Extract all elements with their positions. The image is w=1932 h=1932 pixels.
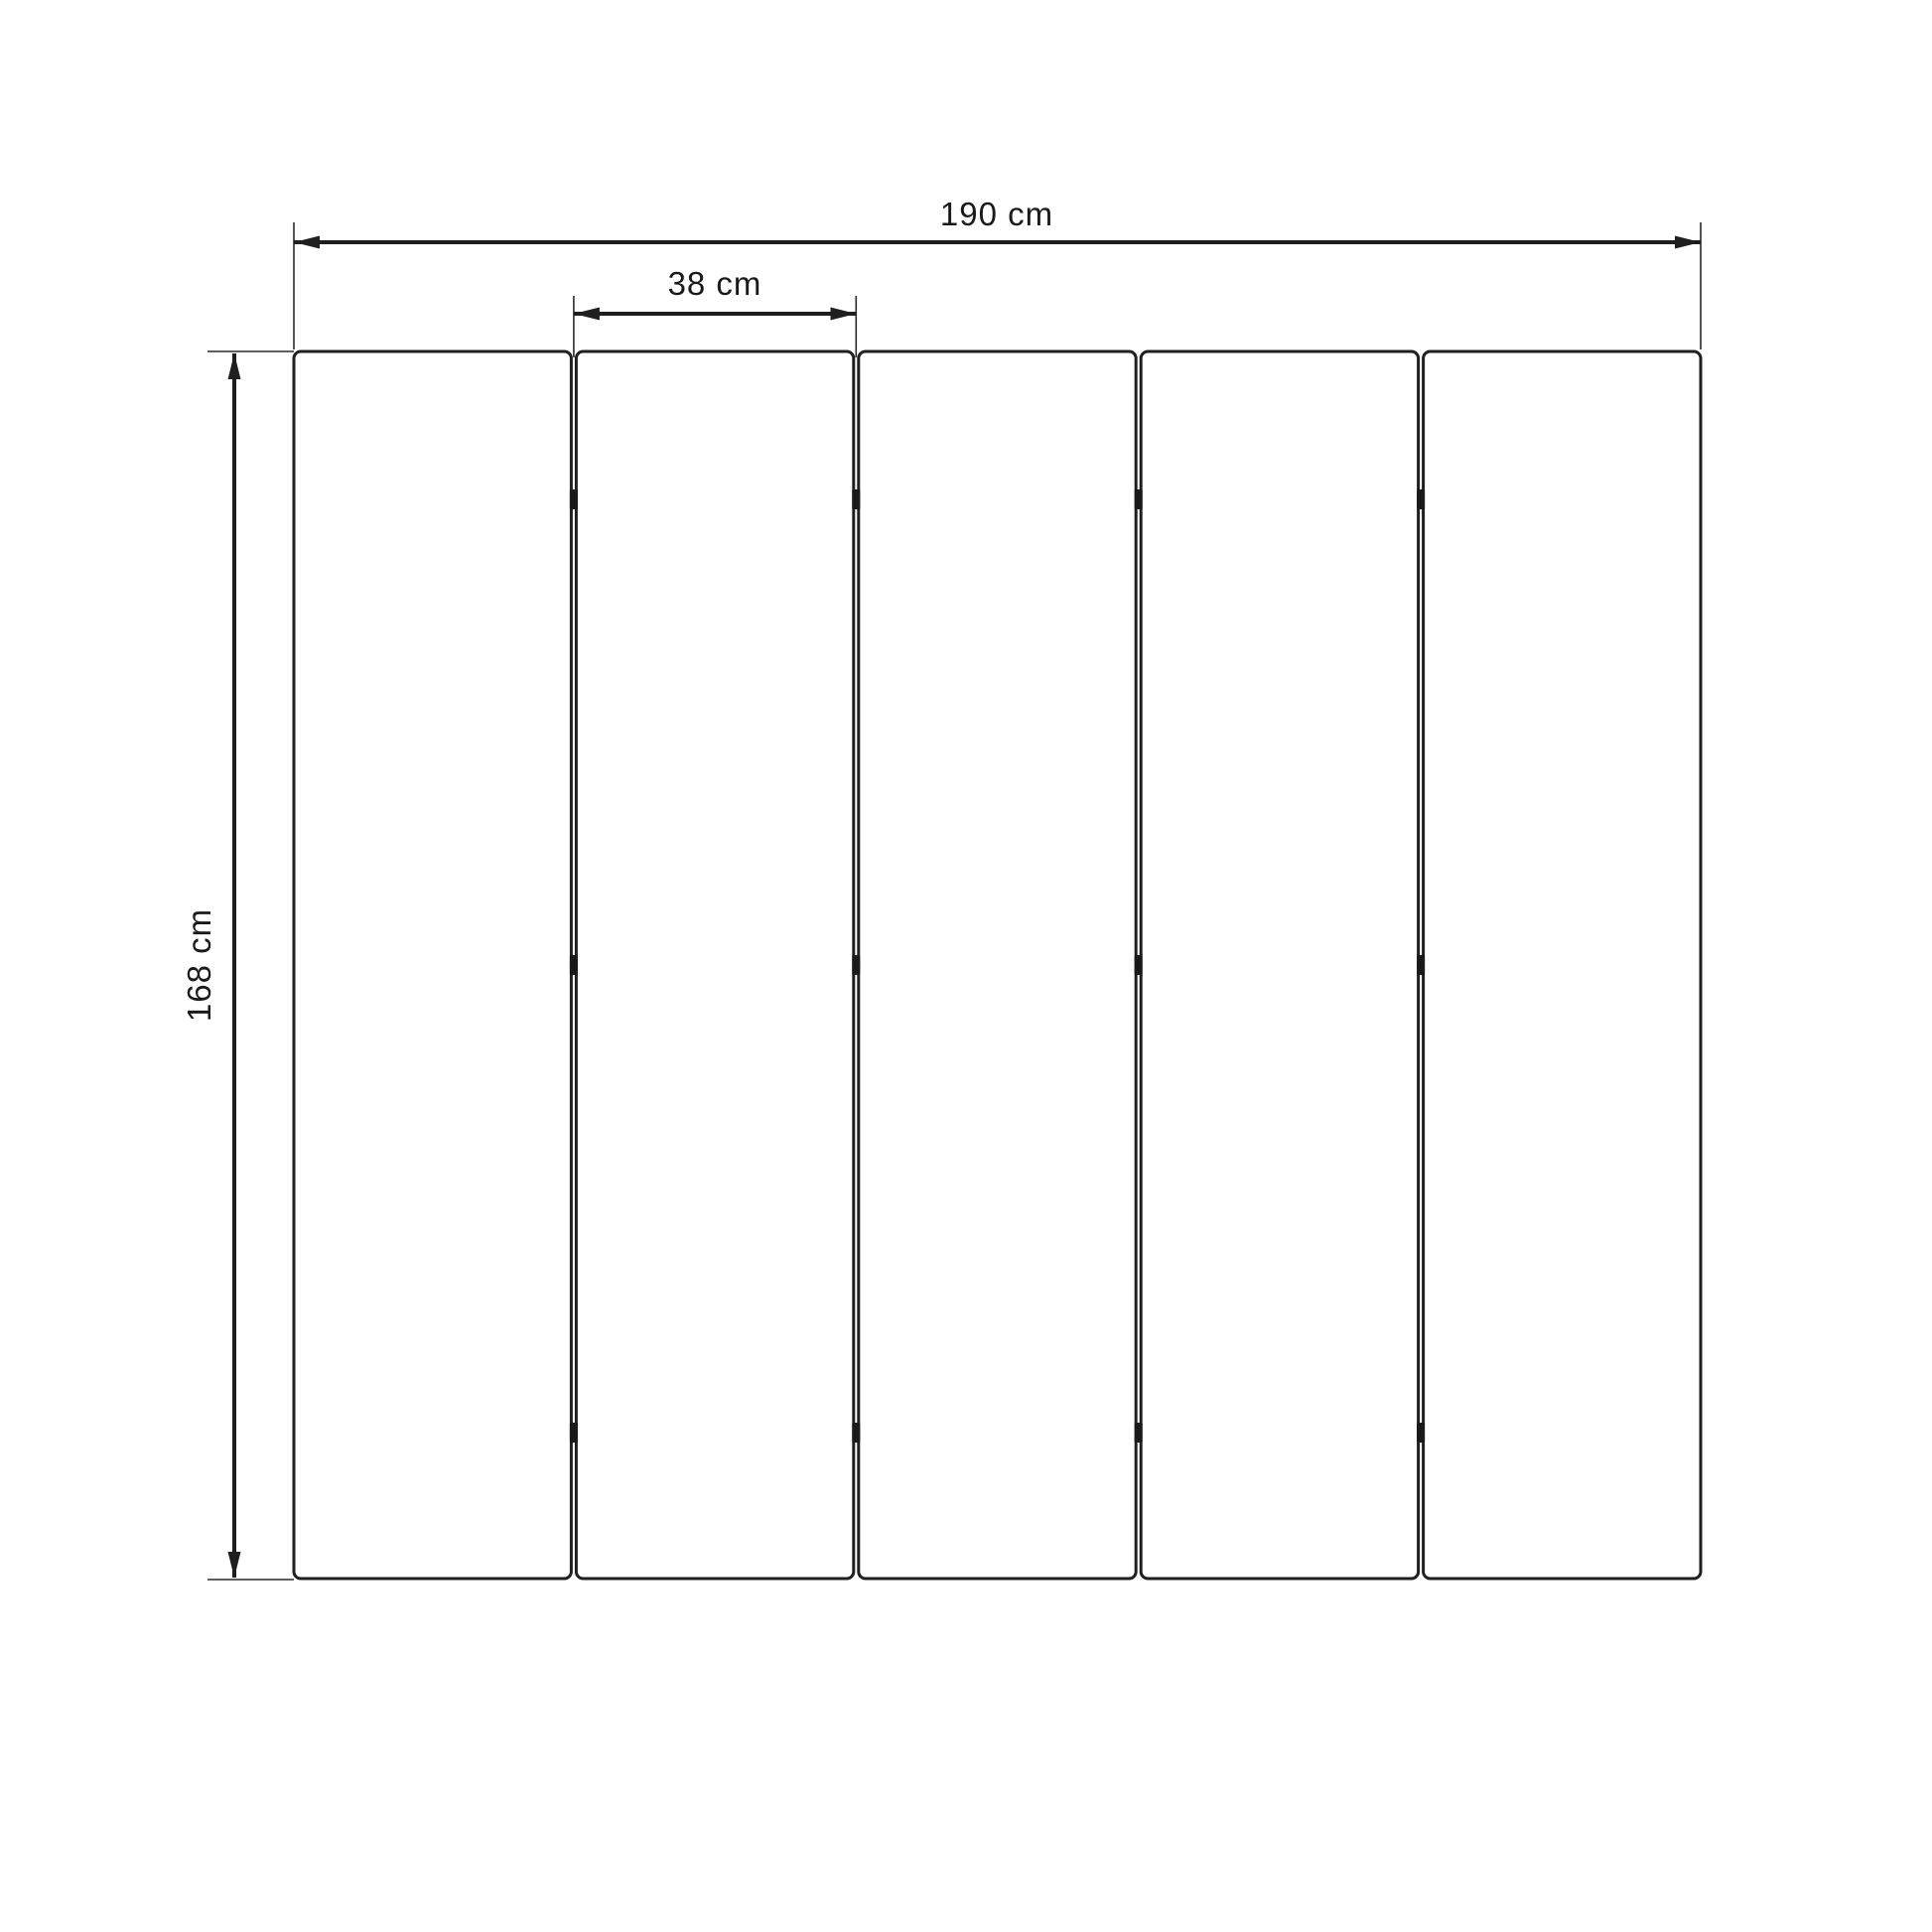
- panel-2: [576, 351, 853, 1579]
- hinge-mark: [570, 955, 578, 975]
- panel-4: [1141, 351, 1418, 1579]
- height-label: 168 cm: [181, 908, 217, 1022]
- hinge-mark: [852, 489, 860, 509]
- height-dimension: 168 cm: [181, 351, 294, 1580]
- hinge-mark: [1135, 1423, 1143, 1443]
- dimension-drawing-canvas: 190 cm 38 cm 168 cm: [0, 0, 1932, 1932]
- hinge-mark: [852, 1423, 860, 1443]
- panel-3: [859, 351, 1136, 1579]
- folding-screen-diagram: 190 cm 38 cm 168 cm: [0, 0, 1932, 1932]
- panel-group: [294, 351, 1701, 1579]
- hinge-mark: [1135, 955, 1143, 975]
- hinge-mark: [1417, 955, 1425, 975]
- hinge-mark: [1417, 1423, 1425, 1443]
- hinge-mark: [570, 1423, 578, 1443]
- total-width-label: 190 cm: [940, 196, 1053, 232]
- panel-width-dimension: 38 cm: [574, 265, 856, 357]
- panel-5: [1424, 351, 1701, 1579]
- hinge-mark: [570, 489, 578, 509]
- hinge-mark: [1417, 489, 1425, 509]
- panel-width-label: 38 cm: [668, 265, 762, 302]
- hinge-mark: [852, 955, 860, 975]
- total-width-dimension: 190 cm: [294, 196, 1701, 349]
- hinge-mark: [1135, 489, 1143, 509]
- panel-1: [294, 351, 571, 1579]
